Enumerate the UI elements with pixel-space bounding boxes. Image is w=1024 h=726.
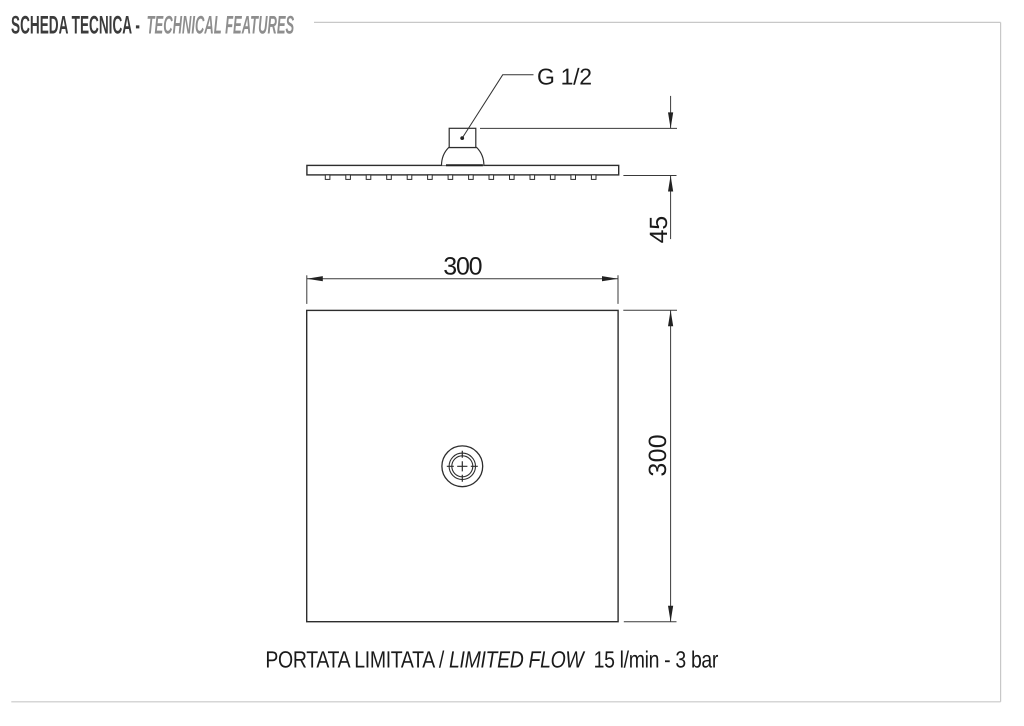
svg-text:TECHNICAL FEATURES: TECHNICAL FEATURES [147,11,295,39]
svg-text:G 1/2: G 1/2 [537,64,592,90]
svg-text:300: 300 [644,434,672,477]
svg-text:SCHEDA TECNICA -: SCHEDA TECNICA - [11,11,140,39]
svg-text:45: 45 [645,216,673,243]
svg-text:300: 300 [443,252,481,280]
svg-text:PORTATA LIMITATA / LIMITED FLO: PORTATA LIMITATA / LIMITED FLOW 15 l/min… [265,647,718,673]
